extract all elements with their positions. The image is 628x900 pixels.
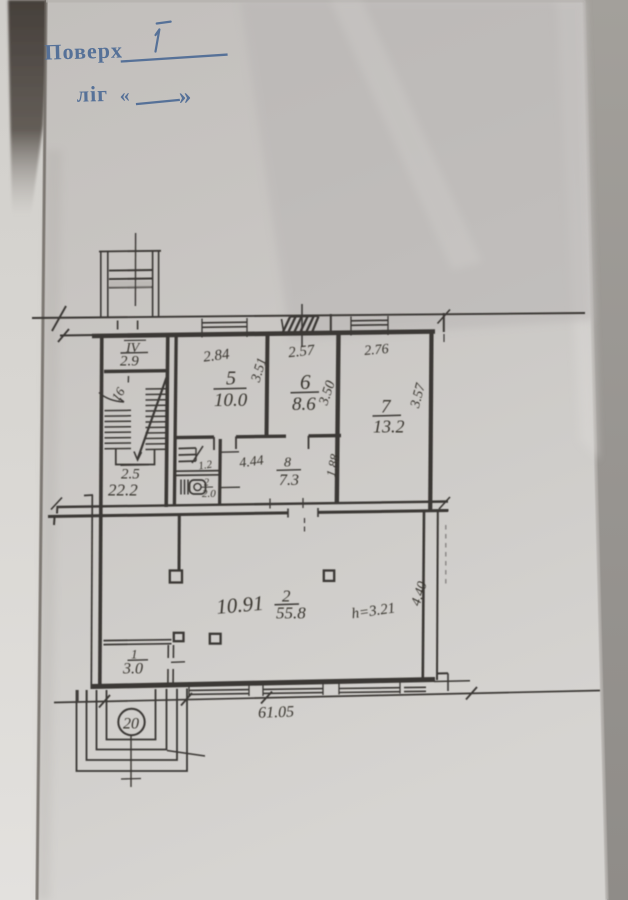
svg-text:»: » [178,83,191,110]
svg-text:8.6: 8.6 [292,394,316,415]
svg-text:4.44: 4.44 [238,453,264,471]
svg-text:7.3: 7.3 [279,472,299,489]
svg-text:22.2: 22.2 [108,481,138,500]
svg-text:1: 1 [131,647,138,662]
svg-text:Поверх: Поверх [44,37,123,64]
svg-text:10.91: 10.91 [215,591,264,619]
svg-text:1.2: 1.2 [198,459,214,473]
svg-text:2.9: 2.9 [120,354,139,370]
svg-text:10.0: 10.0 [214,390,248,411]
svg-text:2.57: 2.57 [287,342,316,361]
svg-text:2.76: 2.76 [364,342,390,359]
svg-text:13.2: 13.2 [373,417,405,437]
svg-text:7: 7 [381,397,392,418]
svg-text:ліг: ліг [76,81,108,107]
svg-text:55.8: 55.8 [276,604,306,623]
svg-text:3.0: 3.0 [122,661,143,678]
svg-text:8: 8 [284,456,291,471]
svg-text:5: 5 [226,368,236,390]
svg-text:6: 6 [300,370,311,394]
svg-text:«: « [119,84,130,106]
svg-text:20: 20 [123,716,139,733]
svg-text:2.84: 2.84 [202,346,231,365]
svg-text:61.05: 61.05 [258,704,295,722]
svg-text:2.0: 2.0 [202,488,216,500]
